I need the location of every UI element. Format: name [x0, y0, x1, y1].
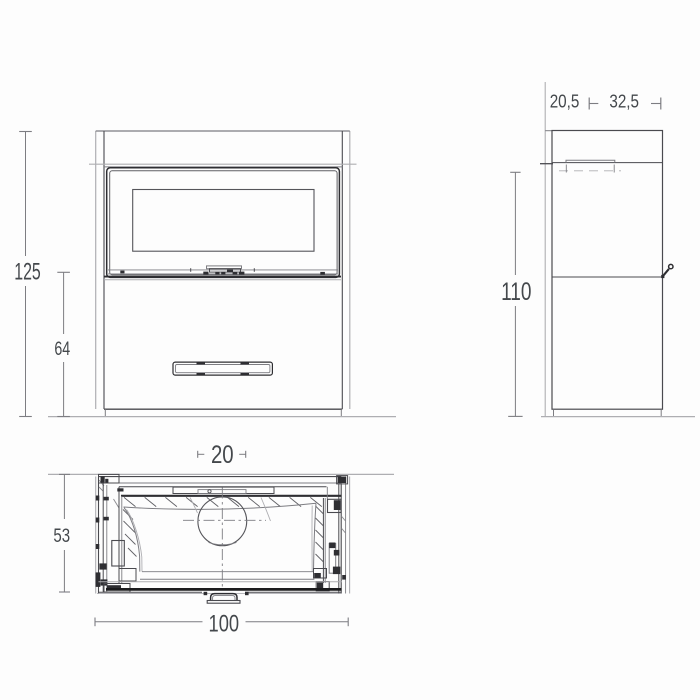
svg-text:53: 53 [53, 524, 70, 547]
svg-text:125: 125 [14, 258, 41, 285]
svg-text:20: 20 [211, 440, 234, 468]
svg-text:100: 100 [209, 610, 240, 637]
svg-text:110: 110 [501, 277, 531, 305]
svg-text:64: 64 [54, 337, 70, 360]
svg-text:20,5: 20,5 [550, 91, 580, 112]
svg-text:32,5: 32,5 [609, 91, 639, 112]
